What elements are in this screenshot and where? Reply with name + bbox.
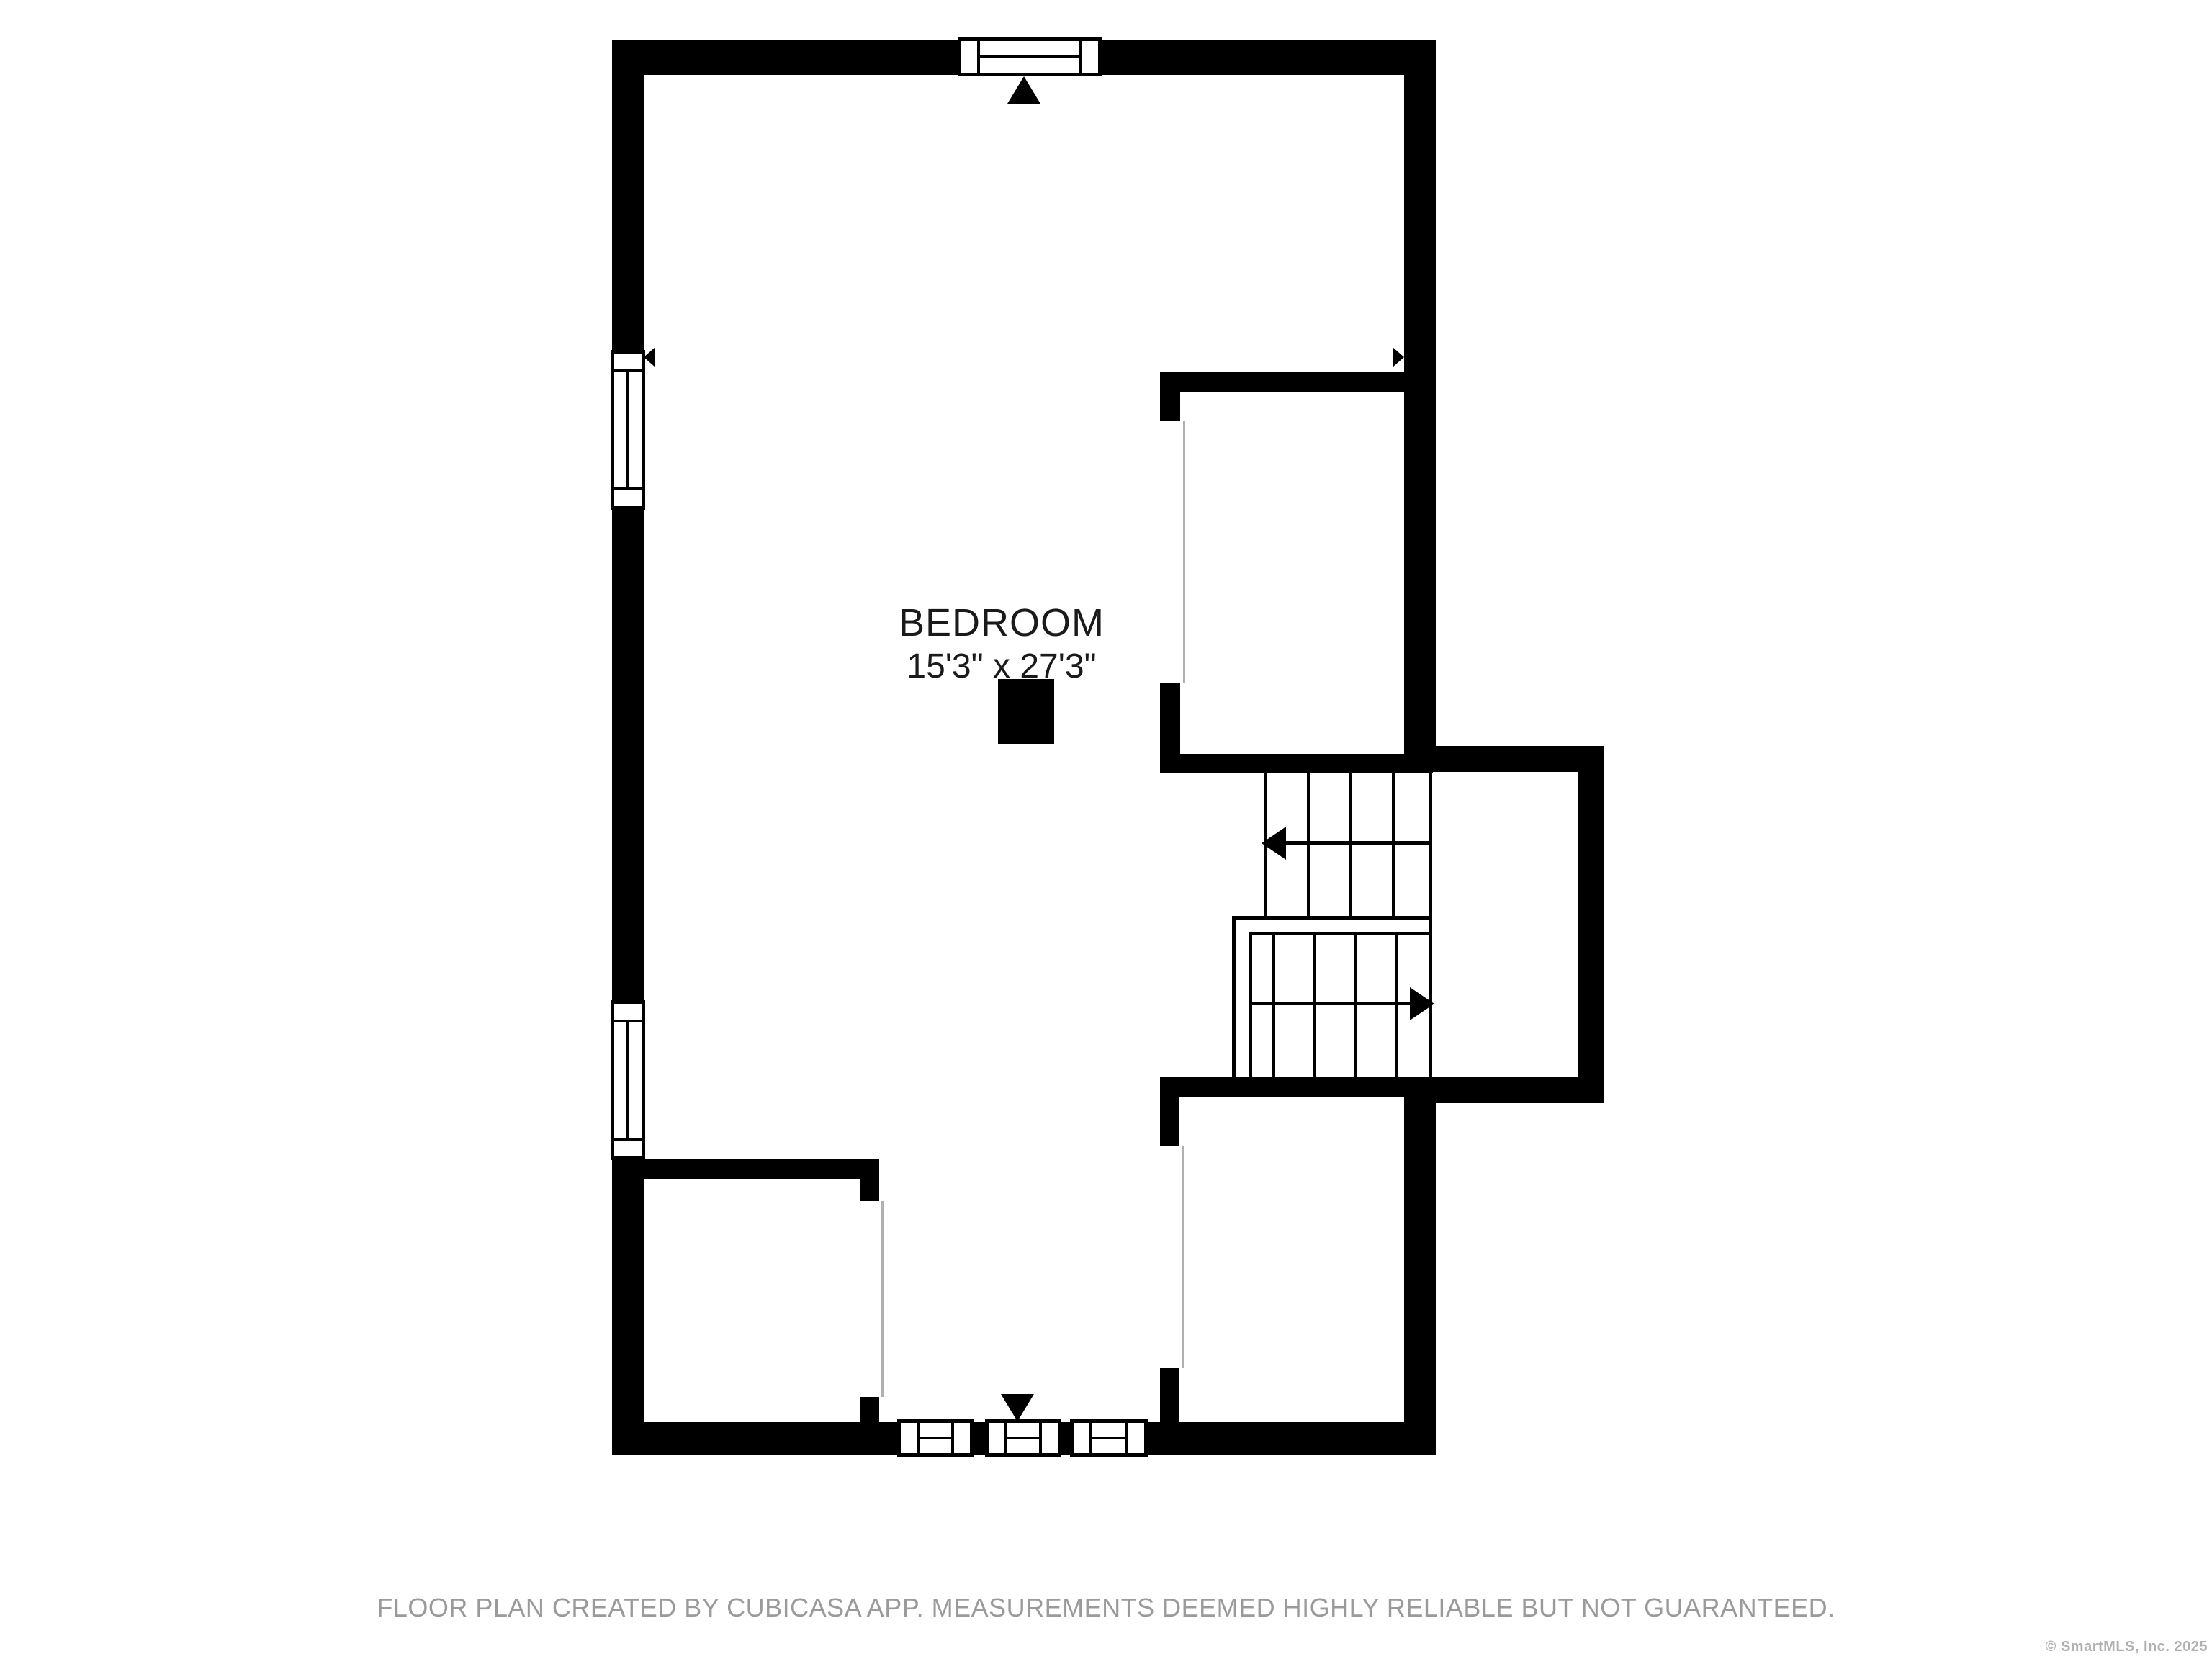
window-pane-line [1091,1437,1127,1439]
window-bottom-3 [1070,1419,1148,1457]
interior-wall-room2-top [1160,1077,1404,1097]
interior-wall-room1-left-stub-top [1160,372,1180,421]
room-dimensions: 15'3" x 27'3" [786,648,1218,685]
bumpout-wall-right [1578,746,1604,1103]
entrance-arrow-down-icon [1001,1394,1034,1421]
window-cap [614,1138,642,1141]
window-left-lower [611,1000,645,1160]
interior-wall-room1-bottom [1160,754,1433,773]
exterior-wall-left [612,40,644,1455]
window-pane-line [626,1021,629,1139]
window-cap [1039,1423,1042,1453]
window-cap [1004,1423,1007,1453]
window-top [958,37,1102,76]
wall-arrow-left-icon [644,347,655,367]
stairs-down-arrow-head-icon [1410,987,1434,1020]
bumpout-wall-bottom [1436,1077,1604,1103]
interior-wall-room3-right-stub-bottom [860,1397,879,1422]
window-cap [614,487,642,490]
window-cap [1089,1423,1092,1453]
stairs-up-arrow-head-icon [1262,827,1286,860]
stairs-landing-edge-line [1429,772,1432,1077]
door-jamb-room2 [1182,1146,1184,1368]
disclaimer-text: FLOOR PLAN CREATED BY CUBICASA APP. MEAS… [0,1593,2212,1623]
wall-arrow-right-icon [1393,347,1404,367]
stairs-down-arrow-shaft [1252,1002,1412,1005]
window-cap [614,1020,642,1022]
interior-wall-room1-top [1160,372,1404,392]
entrance-arrow-up-icon [1007,76,1040,104]
interior-wall-room3-top [644,1159,879,1179]
stair-tread-line [1313,935,1316,1077]
window-pane-line [979,55,1081,58]
bumpout-wall-top [1404,746,1604,772]
window-cap [977,41,980,73]
stair-tread-line [1395,935,1398,1077]
stair-tread-line [1272,935,1275,1077]
window-bottom-2 [985,1419,1061,1457]
window-cap [951,1423,954,1453]
room-label: BEDROOM [786,602,1218,644]
chimney-block [998,679,1054,744]
interior-wall-room3-right-stub-top [860,1179,879,1201]
window-pane-line [1006,1437,1040,1439]
stair-tread-line [1354,935,1357,1077]
floor-plan-page: BEDROOM 15'3" x 27'3" FLOOR PLAN CREATED… [0,0,2212,1659]
interior-wall-room2-left-stub-bottom [1160,1368,1179,1422]
window-left-upper [611,350,645,510]
exterior-wall-right-lower [1404,1077,1436,1455]
stairs-divider-outer-left [1232,916,1236,1077]
window-pane-line [626,371,629,489]
interior-wall-room2-left-stub-top [1160,1077,1179,1146]
door-jamb-room3 [881,1201,884,1397]
window-pane-line [918,1437,953,1439]
exterior-wall-right-upper [1404,40,1436,772]
window-cap [1125,1423,1128,1453]
window-cap [614,369,642,372]
stairs-divider-outer-top [1232,916,1431,920]
window-cap [917,1423,920,1453]
window-bottom-1 [897,1419,974,1457]
window-cap [1079,41,1082,73]
stairs-up-arrow-shaft [1283,841,1430,845]
copyright-text: © SmartMLS, Inc. 2025 [2046,1639,2208,1655]
